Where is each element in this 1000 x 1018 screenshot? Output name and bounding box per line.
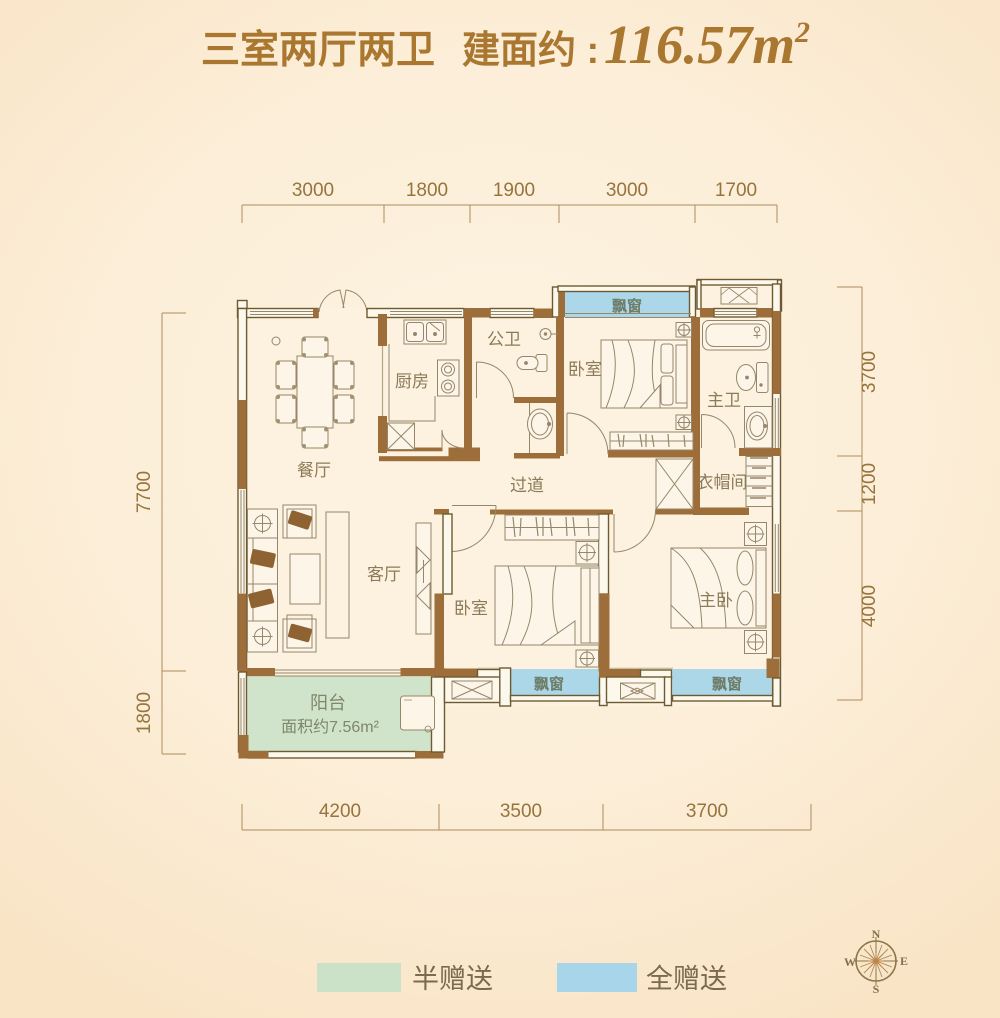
svg-text:E: E xyxy=(900,954,908,968)
svg-text:阳台: 阳台 xyxy=(310,693,346,713)
svg-text:公卫: 公卫 xyxy=(487,330,521,349)
svg-text:建面约 :: 建面约 : xyxy=(462,30,599,72)
svg-text:116.57m2: 116.57m2 xyxy=(604,14,810,75)
svg-text:半赠送: 半赠送 xyxy=(412,964,493,994)
svg-text:3700: 3700 xyxy=(859,351,880,393)
svg-text:1200: 1200 xyxy=(859,463,880,505)
svg-text:餐厅: 餐厅 xyxy=(297,461,331,480)
svg-text:1700: 1700 xyxy=(715,180,757,201)
svg-text:主卧: 主卧 xyxy=(699,591,733,610)
svg-text:7700: 7700 xyxy=(134,471,155,513)
svg-text:3000: 3000 xyxy=(292,180,334,201)
svg-text:W: W xyxy=(844,955,856,969)
svg-text:4000: 4000 xyxy=(859,585,880,627)
svg-text:1900: 1900 xyxy=(493,180,535,201)
svg-text:飘窗: 飘窗 xyxy=(534,675,564,693)
svg-text:衣帽间: 衣帽间 xyxy=(697,473,748,492)
svg-text:主卫: 主卫 xyxy=(707,391,741,410)
svg-text:N: N xyxy=(872,927,881,941)
svg-text:客厅: 客厅 xyxy=(367,565,401,584)
svg-text:飘窗: 飘窗 xyxy=(612,297,642,315)
svg-text:厨房: 厨房 xyxy=(395,372,429,391)
svg-text:卧室: 卧室 xyxy=(454,599,488,618)
svg-text:3000: 3000 xyxy=(606,180,648,201)
svg-text:全赠送: 全赠送 xyxy=(646,964,727,994)
svg-text:3500: 3500 xyxy=(500,801,542,822)
svg-text:面积约7.56m²: 面积约7.56m² xyxy=(281,718,379,736)
svg-text:S: S xyxy=(873,982,880,996)
svg-text:4200: 4200 xyxy=(319,801,361,822)
svg-text:三室两厅两卫: 三室两厅两卫 xyxy=(201,29,435,72)
svg-text:1800: 1800 xyxy=(406,180,448,201)
svg-text:1800: 1800 xyxy=(134,692,155,734)
svg-text:卧室: 卧室 xyxy=(568,360,602,379)
svg-text:过道: 过道 xyxy=(510,476,544,495)
svg-text:3700: 3700 xyxy=(686,801,728,822)
svg-text:飘窗: 飘窗 xyxy=(712,675,742,693)
